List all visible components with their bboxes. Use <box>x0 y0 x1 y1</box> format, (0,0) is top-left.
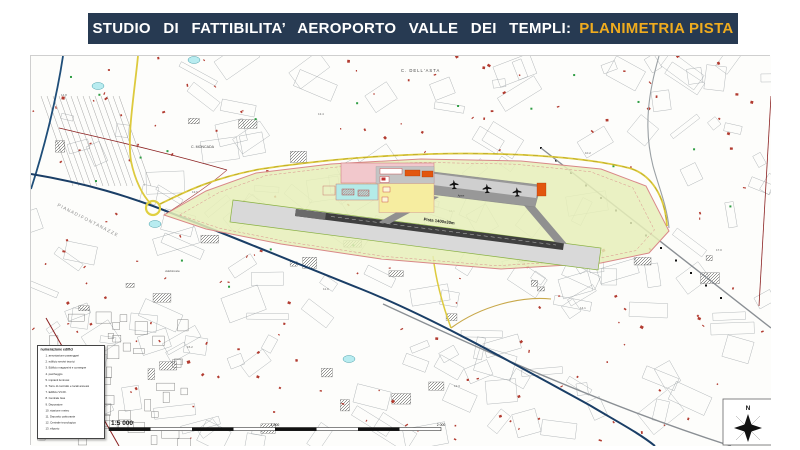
scale-seg <box>192 428 234 431</box>
building-orange-2 <box>422 171 433 177</box>
building-small-1-core <box>382 178 386 181</box>
scale-end-label: 2 000 <box>437 423 446 427</box>
building-orange-3 <box>537 183 546 196</box>
apron-label: Apron <box>458 195 465 198</box>
map-canvas: 14.813.611.912.310.217.015.213.416.114.1 <box>30 55 770 445</box>
slide-title: STUDIO DI FATTIBILITA’ AEROPORTO VALLE D… <box>92 20 571 37</box>
cadastral-map: 14.813.611.912.310.217.015.213.416.114.1 <box>31 56 771 446</box>
building-hatched-1 <box>342 189 354 195</box>
svg-text:11.9: 11.9 <box>323 287 329 291</box>
locality-label: C. DELL'ASTA <box>401 68 440 73</box>
svg-text:14.8: 14.8 <box>61 93 67 97</box>
locality-label: C. MONCADA <box>191 145 215 149</box>
legend-box: numerazione edifici 1. aerostazione pass… <box>37 345 105 439</box>
slide-title-highlight: PLANIMETRIA PISTA <box>579 20 733 37</box>
north-label: N <box>746 405 751 412</box>
svg-text:13.4: 13.4 <box>318 112 324 116</box>
slide: STUDIO DI FATTIBILITA’ AEROPORTO VALLE D… <box>0 0 800 450</box>
terminal-building <box>380 169 402 175</box>
scale-seg <box>358 428 400 431</box>
building-hatched-2 <box>358 190 369 196</box>
svg-text:10.2: 10.2 <box>585 151 591 155</box>
scale-seg <box>109 428 151 431</box>
legend-item: 13. eliporto <box>41 426 102 432</box>
legend-content: numerazione edifici 1. aerostazione pass… <box>38 346 104 438</box>
scale-mid-label: 1 000 <box>271 423 280 427</box>
svg-text:12.3: 12.3 <box>454 384 460 388</box>
svg-text:17.0: 17.0 <box>716 248 722 252</box>
svg-text:13.6: 13.6 <box>192 190 198 194</box>
compass-rose: N <box>723 399 771 445</box>
scale-seg <box>275 428 317 431</box>
svg-text:14.1: 14.1 <box>580 306 586 310</box>
shed-2 <box>382 197 388 202</box>
title-bar: STUDIO DI FATTIBILITA’ AEROPORTO VALLE D… <box>88 13 738 44</box>
shed-1 <box>383 187 390 192</box>
scale-ratio: 1:5 000 <box>111 420 133 427</box>
building-orange-1 <box>405 170 420 176</box>
svg-text:15.2: 15.2 <box>187 345 193 349</box>
locality-label: Addolorata <box>164 269 180 273</box>
legend-title: numerazione edifici <box>41 348 102 352</box>
